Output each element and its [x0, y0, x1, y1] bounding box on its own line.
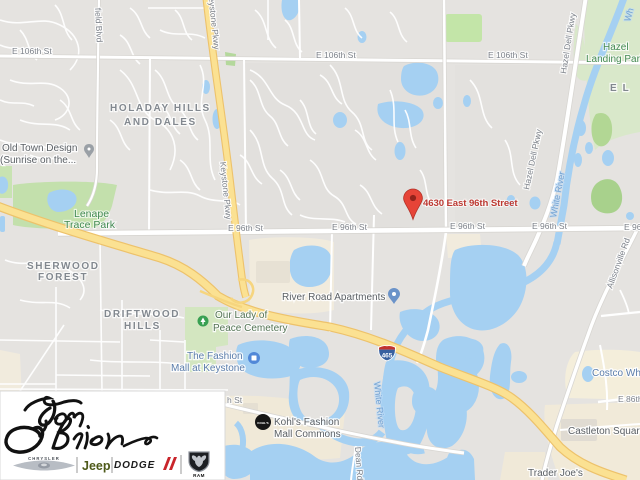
- svg-text:465: 465: [382, 353, 393, 360]
- svg-text:E 96th St: E 96th St: [450, 221, 486, 231]
- svg-text:E 106th St: E 106th St: [488, 50, 528, 60]
- svg-text:CHRYSLER: CHRYSLER: [28, 456, 60, 461]
- svg-text:E 86th St: E 86th St: [618, 394, 640, 404]
- svg-text:Jeep: Jeep: [82, 459, 111, 473]
- svg-text:Old Town Design: Old Town Design: [2, 143, 77, 154]
- svg-text:DODGE: DODGE: [114, 460, 155, 471]
- svg-text:E 96th St: E 96th St: [532, 221, 568, 231]
- svg-text:E 106th St: E 106th St: [12, 46, 52, 56]
- svg-text:Landing Park: Landing Park: [586, 54, 640, 65]
- svg-text:The Fashion: The Fashion: [187, 351, 243, 362]
- svg-text:E 96th: E 96th: [624, 222, 640, 232]
- svg-text:HOLADAY HILLS: HOLADAY HILLS: [110, 103, 211, 114]
- svg-text:Trader Joe's: Trader Joe's: [528, 468, 583, 479]
- svg-text:DRIFTWOOD: DRIFTWOOD: [104, 309, 180, 320]
- svg-text:Mall Commons: Mall Commons: [274, 429, 341, 440]
- svg-text:E 96th St: E 96th St: [228, 223, 264, 233]
- svg-text:FOREST: FOREST: [38, 272, 88, 283]
- svg-text:Kohl's Fashion: Kohl's Fashion: [274, 417, 339, 428]
- svg-text:Hazel: Hazel: [603, 42, 629, 53]
- svg-text:Our Lady of: Our Lady of: [215, 310, 267, 321]
- svg-text:E L: E L: [610, 83, 630, 94]
- svg-text:RAM: RAM: [193, 473, 205, 478]
- svg-text:E 106th St: E 106th St: [316, 50, 356, 60]
- svg-text:HILLS: HILLS: [124, 321, 161, 332]
- svg-text:Castleton Square: Castleton Square: [568, 426, 640, 437]
- svg-text:Peace Cemetery: Peace Cemetery: [213, 323, 287, 334]
- svg-text:Trace Park: Trace Park: [64, 219, 116, 231]
- svg-text:h St: h St: [227, 395, 243, 405]
- svg-text:field Blvd: field Blvd: [93, 8, 105, 43]
- svg-text:Mall at Keystone: Mall at Keystone: [171, 363, 245, 374]
- svg-text:AND DALES: AND DALES: [124, 117, 197, 128]
- svg-text:River Road Apartments: River Road Apartments: [282, 292, 385, 303]
- svg-text:E 96th St: E 96th St: [332, 222, 368, 232]
- svg-text:SHERWOOD: SHERWOOD: [27, 261, 100, 272]
- svg-text:4630 East 96th Street: 4630 East 96th Street: [423, 198, 518, 209]
- svg-text:Costco Wh: Costco Wh: [592, 368, 640, 379]
- svg-text:(Sunrise on the...: (Sunrise on the...: [0, 155, 76, 166]
- svg-text:KOHL'S: KOHL'S: [257, 421, 268, 425]
